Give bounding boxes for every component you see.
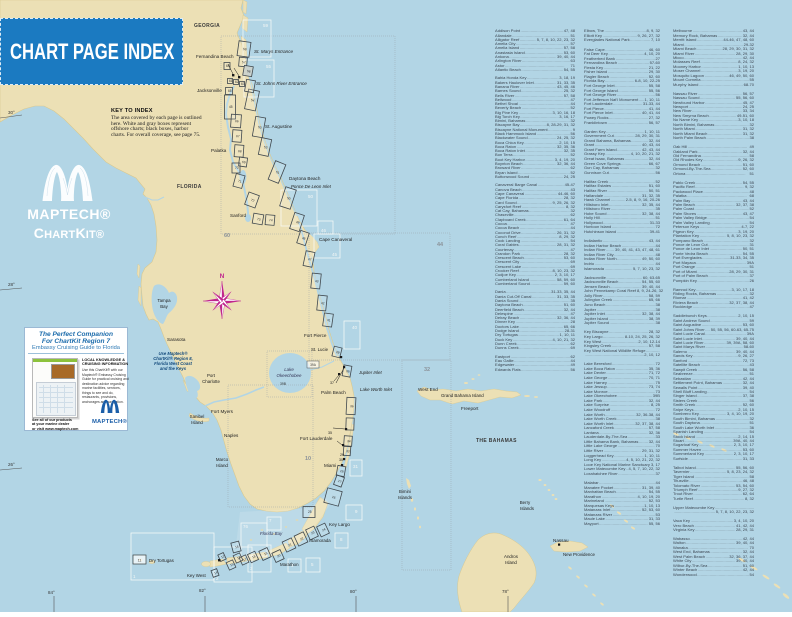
svg-text:St. Johns River Entrance: St. Johns River Entrance: [256, 81, 307, 86]
svg-text:West End: West End: [418, 387, 438, 392]
svg-text:Island: Island: [191, 420, 203, 425]
svg-text:Key Largo: Key Largo: [329, 522, 350, 527]
svg-text:Nassau: Nassau: [553, 538, 569, 543]
svg-text:60: 60: [224, 233, 230, 239]
svg-text:Key West: Key West: [187, 573, 206, 578]
svg-text:Grand Bahama Island: Grand Bahama Island: [441, 393, 484, 398]
svg-text:Bimini: Bimini: [399, 489, 411, 494]
svg-text:GEORGIA: GEORGIA: [194, 23, 220, 29]
svg-text:Daytona Beach: Daytona Beach: [289, 176, 321, 181]
svg-text:76: 76: [243, 524, 249, 529]
svg-text:68: 68: [238, 149, 242, 153]
svg-text:St. Augustine: St. Augustine: [265, 124, 293, 129]
svg-text:37: 37: [330, 381, 334, 385]
svg-text:28°: 28°: [8, 282, 15, 287]
svg-text:78°: 78°: [502, 589, 509, 594]
svg-text:40: 40: [352, 325, 358, 330]
svg-text:25: 25: [308, 510, 312, 514]
svg-text:Charlotte: Charlotte: [202, 379, 220, 384]
svg-text:Jacksonville: Jacksonville: [197, 88, 222, 93]
svg-text:Lake: Lake: [284, 367, 294, 372]
svg-text:Islands: Islands: [398, 495, 413, 500]
svg-text:Islands: Islands: [520, 506, 535, 511]
svg-text:Okeechobee: Okeechobee: [277, 373, 302, 378]
svg-text:62: 62: [235, 80, 239, 84]
svg-text:57: 57: [242, 60, 246, 64]
svg-text:33: 33: [346, 449, 350, 453]
svg-text:Palm Beach: Palm Beach: [321, 390, 346, 395]
svg-text:36: 36: [350, 404, 354, 408]
svg-text:Island: Island: [505, 560, 517, 565]
svg-text:Miami: Miami: [324, 463, 336, 468]
svg-text:43: 43: [315, 279, 319, 283]
svg-text:Island: Island: [216, 463, 228, 468]
svg-text:35: 35: [328, 431, 332, 435]
svg-text:Ponce De Leon Inlet: Ponce De Leon Inlet: [291, 184, 332, 189]
svg-text:84°: 84°: [48, 590, 55, 595]
svg-text:Andros: Andros: [504, 554, 519, 559]
svg-text:Palatka: Palatka: [211, 148, 227, 153]
svg-text:Fort Myers: Fort Myers: [211, 409, 234, 414]
svg-text:Naples: Naples: [224, 433, 239, 438]
svg-text:65: 65: [228, 89, 232, 93]
svg-text:Marco: Marco: [216, 457, 229, 462]
svg-text:39B: 39B: [280, 382, 287, 386]
svg-text:11: 11: [138, 559, 142, 563]
svg-text:45: 45: [332, 252, 338, 257]
svg-text:FLORIDA: FLORIDA: [177, 184, 202, 190]
svg-text:Bay: Bay: [160, 304, 168, 309]
svg-text:Islamorada: Islamorada: [309, 538, 331, 543]
svg-text:Berry: Berry: [520, 500, 531, 505]
svg-text:61: 61: [229, 79, 233, 83]
svg-text:50: 50: [308, 194, 314, 199]
svg-text:Cape Canaveral: Cape Canaveral: [319, 237, 352, 242]
svg-text:N: N: [220, 273, 225, 280]
svg-text:63: 63: [241, 82, 245, 86]
svg-text:67: 67: [236, 134, 240, 138]
svg-text:32: 32: [424, 367, 430, 373]
svg-text:31: 31: [353, 464, 359, 469]
svg-text:New Providence: New Providence: [563, 552, 596, 557]
svg-text:30°: 30°: [8, 110, 15, 115]
svg-text:59: 59: [263, 23, 269, 28]
svg-text:Sanford: Sanford: [230, 213, 247, 218]
svg-text:55: 55: [266, 64, 272, 69]
svg-text:45: 45: [229, 105, 233, 109]
svg-text:44: 44: [437, 242, 444, 248]
svg-text:82°: 82°: [199, 588, 206, 593]
svg-text:29: 29: [340, 453, 344, 457]
svg-text:74: 74: [269, 218, 273, 222]
svg-text:Florida Bay: Florida Bay: [260, 531, 283, 536]
svg-text:46: 46: [321, 228, 327, 233]
svg-text:Sarasota: Sarasota: [167, 337, 186, 342]
svg-text:30: 30: [339, 458, 343, 462]
svg-text:42: 42: [321, 301, 325, 305]
svg-text:Tampa: Tampa: [157, 298, 171, 303]
svg-text:Fort Pierce: Fort Pierce: [304, 333, 327, 338]
svg-text:Port: Port: [207, 373, 216, 378]
svg-text:Marathon: Marathon: [280, 562, 299, 567]
svg-text:Jupiter Inlet: Jupiter Inlet: [358, 370, 382, 375]
svg-text:Fernandina Beach: Fernandina Beach: [196, 54, 234, 59]
svg-text:34: 34: [347, 439, 351, 443]
svg-text:Sanibel: Sanibel: [190, 414, 205, 419]
svg-text:St. Lucie: St. Lucie: [311, 347, 329, 352]
svg-text:Fort Lauderdale: Fort Lauderdale: [300, 436, 333, 441]
svg-text:Freeport: Freeport: [461, 406, 479, 411]
svg-text:39A: 39A: [310, 363, 317, 367]
svg-text:THE BAHAMAS: THE BAHAMAS: [476, 438, 517, 444]
svg-text:10: 10: [305, 456, 311, 462]
svg-text:70: 70: [235, 166, 239, 170]
svg-text:26°: 26°: [8, 462, 15, 467]
svg-text:St. Marys Entrance: St. Marys Entrance: [254, 49, 294, 54]
svg-text:Dry Tortugas: Dry Tortugas: [149, 558, 175, 563]
svg-text:66: 66: [235, 119, 239, 123]
svg-text:80°: 80°: [350, 589, 357, 594]
svg-text:Lake Worth Inlet: Lake Worth Inlet: [360, 387, 393, 392]
svg-text:and the Keys: and the Keys: [160, 366, 187, 371]
